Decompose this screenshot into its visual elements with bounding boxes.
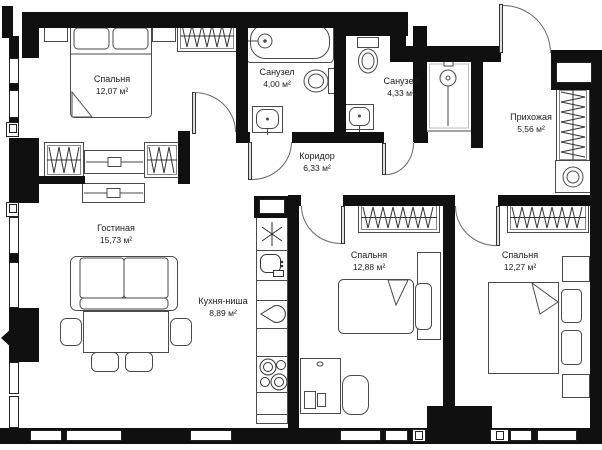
room-label-bath-2: Санузел 4,33 м²	[361, 76, 441, 99]
double-bed	[70, 24, 152, 118]
wall-top-left-step	[2, 6, 13, 38]
room-area: 12,27 м²	[470, 262, 570, 273]
room-area: 5,56 м²	[489, 124, 573, 135]
room-name: Коридор	[277, 151, 357, 163]
dresser	[84, 149, 145, 175]
desk-chair	[299, 356, 371, 416]
room-label-bath-1: Санузел 4,00 м²	[237, 67, 317, 90]
door-leaf-bedroom2	[341, 206, 345, 244]
door-arc-bath2	[386, 143, 414, 175]
room-label-living: Гостиная 15,73 м²	[66, 223, 166, 246]
counter-divider	[256, 392, 288, 393]
single-bed	[338, 278, 434, 335]
room-label-bedroom-2: Спальня 12,88 м²	[319, 250, 419, 273]
nightstand	[562, 374, 590, 398]
door-arc-bedroom2	[301, 206, 341, 244]
window-pane	[510, 430, 532, 441]
sink	[345, 104, 375, 133]
window-pane	[9, 217, 19, 254]
washing-machine	[555, 160, 591, 193]
wardrobe-icon	[144, 142, 180, 178]
room-name: Спальня	[319, 250, 419, 262]
room-label-bedroom-3: Спальня 12,27 м²	[470, 250, 570, 273]
wall-corridor-south	[498, 195, 602, 206]
kitchen-vent-opening	[259, 199, 285, 214]
counter-divider	[256, 280, 288, 281]
room-area: 4,33 м²	[361, 88, 441, 99]
door-leaf-bedroom3	[496, 206, 500, 246]
room-area: 8,89 м²	[168, 308, 278, 319]
door-arc-bedroom3	[455, 206, 496, 246]
wall-pier	[9, 36, 19, 58]
room-area: 12,88 м²	[319, 262, 419, 273]
window-pane	[66, 430, 122, 441]
dining-table-chairs	[60, 310, 192, 374]
sofa	[70, 254, 178, 314]
floor-plan: Спальня 12,07 м² Санузел 4,00 м² Санузел…	[0, 0, 602, 450]
wardrobe-icon	[358, 202, 440, 233]
wall-stub	[178, 131, 190, 184]
wardrobe-icon	[507, 202, 589, 233]
window-pane	[9, 90, 19, 118]
wall-right	[590, 52, 602, 444]
wall-segment	[414, 132, 428, 143]
room-label-kitchen: Кухня-ниша 8,89 м²	[168, 296, 278, 319]
wall-step-block	[390, 12, 406, 46]
wall-shower-hallway	[471, 46, 483, 148]
dresser	[82, 183, 145, 203]
hob-burners-icon	[257, 357, 287, 391]
wardrobe-icon	[44, 142, 84, 178]
counter-divider	[256, 250, 288, 251]
wall-t-block	[427, 406, 492, 430]
entrance-door-arc	[503, 5, 551, 53]
window-pane	[9, 396, 19, 428]
room-name: Санузел	[237, 67, 317, 79]
room-name: Санузел	[361, 76, 441, 88]
room-name: Кухня-ниша	[168, 296, 278, 308]
window-pane	[190, 430, 232, 441]
utility-niche	[556, 62, 592, 83]
room-area: 12,07 м²	[62, 86, 162, 97]
double-bed	[488, 282, 586, 375]
door-arc-bedroom1	[194, 92, 236, 132]
kitchen-sink-icon	[258, 252, 286, 279]
window-vent	[6, 122, 19, 137]
window-mullion	[9, 254, 19, 262]
room-area: 6,33 м²	[277, 163, 357, 174]
sink	[252, 106, 284, 136]
wall-pier	[9, 138, 39, 203]
room-label-corridor: Коридор 6,33 м²	[277, 151, 357, 174]
room-name: Спальня	[62, 74, 162, 86]
wall-segment	[38, 176, 85, 184]
wall-bath1-bath2	[334, 28, 346, 143]
counter-divider	[256, 328, 288, 329]
room-label-hallway: Прихожая 5,56 м²	[489, 112, 573, 135]
window-pane	[385, 430, 408, 441]
wall-pier	[22, 12, 39, 58]
wall-bedroom2-bedroom3	[443, 195, 455, 412]
fridge-icon	[258, 220, 286, 248]
window-vent	[412, 429, 426, 442]
wall-corridor-south	[343, 195, 455, 206]
window-pane	[9, 58, 19, 84]
window-vent	[6, 202, 19, 217]
window-pane	[30, 430, 62, 441]
window-pane	[537, 430, 577, 441]
toilet	[355, 36, 381, 76]
room-area: 15,73 м²	[66, 235, 166, 246]
room-area: 4,00 м²	[237, 79, 317, 90]
room-name: Гостиная	[66, 223, 166, 235]
window-pane	[9, 262, 19, 308]
room-name: Прихожая	[489, 112, 573, 124]
counter-divider	[256, 414, 288, 415]
window-pane	[340, 430, 381, 441]
wall-bath-south	[292, 132, 384, 143]
wall-kitchen-bedroom2	[288, 195, 299, 444]
window-pane	[9, 362, 19, 394]
direction-marker	[0, 314, 26, 362]
window-vent	[490, 429, 509, 442]
room-name: Спальня	[470, 250, 570, 262]
wall-entry-band	[390, 46, 501, 62]
room-label-bedroom-1: Спальня 12,07 м²	[62, 74, 162, 97]
